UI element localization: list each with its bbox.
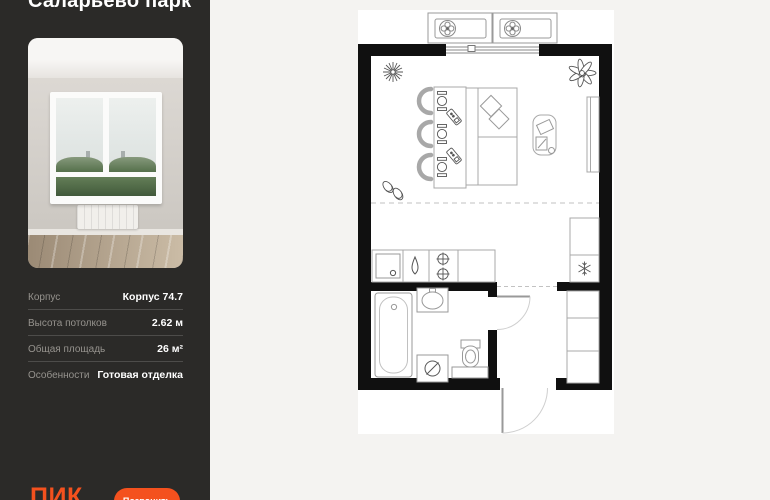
cta-button[interactable]: Позвонить [114, 488, 180, 500]
entrance-door [503, 388, 548, 433]
spec-label: Особенности [28, 370, 89, 381]
spec-row: Высота потолков 2.62 м [28, 310, 183, 336]
window-pane-bottom-trees [56, 177, 156, 196]
bar-chair [419, 122, 431, 146]
bathroom-door [497, 297, 530, 330]
spec-row: Общая площадь 26 м² [28, 336, 183, 362]
treeline [109, 157, 156, 172]
photo-window [50, 92, 162, 204]
window-pane-right [109, 98, 156, 172]
fridge [570, 255, 599, 282]
bathroom-sink [417, 288, 448, 312]
bathroom-shelf [452, 367, 488, 378]
plant-icon [568, 59, 596, 88]
spec-value: Готовая отделка [97, 369, 183, 381]
photo-ceiling [28, 38, 183, 78]
tall-cabinet [570, 218, 599, 255]
spec-row: Корпус Корпус 74.7 [28, 284, 183, 310]
spec-label: Высота потолков [28, 318, 107, 329]
photo-floor [28, 235, 183, 268]
bed [466, 88, 517, 185]
kitchen-counter [372, 250, 495, 282]
toilet [461, 340, 480, 367]
washing-machine [417, 355, 448, 382]
bar-chairs [419, 89, 431, 179]
slippers-icon [381, 180, 405, 202]
bar-chair [419, 155, 431, 179]
armchair [533, 115, 556, 155]
ac-unit-right [493, 13, 557, 43]
spec-row: Особенности Готовая отделка [28, 362, 183, 387]
pik-logo[interactable]: ПИК [30, 483, 83, 500]
bar-chair [419, 89, 431, 113]
hall-wardrobe [567, 291, 599, 383]
spec-list: Корпус Корпус 74.7 Высота потолков 2.62 … [28, 284, 183, 387]
bar-counter [434, 87, 466, 188]
flower-icon [383, 62, 403, 82]
spec-label: Общая площадь [28, 344, 105, 355]
window-symbol [446, 44, 539, 56]
treeline [56, 157, 103, 172]
tv-panel [587, 97, 599, 172]
place-setting-icon [437, 92, 446, 111]
photo-radiator [77, 205, 138, 229]
place-setting-icon [437, 158, 446, 177]
place-setting-icon [437, 125, 446, 144]
spec-label: Корпус [28, 292, 60, 303]
spec-value: 2.62 м [152, 317, 183, 329]
spec-value: 26 м² [157, 343, 183, 355]
ac-fan-icon [505, 21, 521, 37]
bathtub [375, 293, 412, 377]
apartment-photo[interactable] [28, 38, 183, 268]
spec-value: Корпус 74.7 [123, 291, 183, 303]
sidebar: Саларьево парк Корпус Корпус 74.7 Высота… [0, 0, 210, 500]
kitchen-sink [376, 254, 400, 278]
floor-plan[interactable] [358, 10, 614, 434]
window-pane-left [56, 98, 103, 172]
project-title: Саларьево парк [28, 0, 191, 13]
ac-unit-left [428, 13, 492, 43]
ac-fan-icon [440, 21, 456, 37]
